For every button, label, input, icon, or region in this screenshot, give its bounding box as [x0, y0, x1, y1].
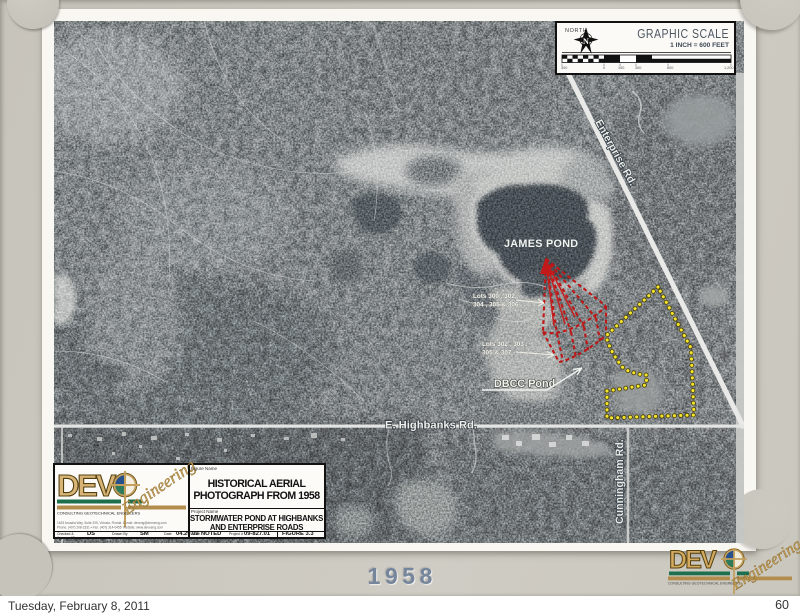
- svg-text:Lots 302 , 303 ,: Lots 302 , 303 ,: [482, 341, 528, 348]
- svg-text:Lots 300 , 302 ,: Lots 300 , 302 ,: [473, 293, 519, 300]
- svg-text:1,200: 1,200: [724, 66, 734, 70]
- svg-text:GRAPHIC SCALE: GRAPHIC SCALE: [637, 26, 729, 41]
- svg-text:Website: www.devoeng.com: Website: www.devoeng.com: [123, 526, 163, 530]
- svg-text:600: 600: [667, 66, 673, 70]
- svg-text:Phone: (407) 208-2331 • Fax: (: Phone: (407) 208-2331 • Fax: (407) 314-0…: [57, 526, 122, 530]
- svg-text:DBCC Pond: DBCC Pond: [494, 378, 555, 390]
- svg-text:1625 Arcadia Way, Suite 205, V: 1625 Arcadia Way, Suite 205, Volusia, Fl…: [57, 521, 122, 525]
- svg-text:DEV: DEV: [669, 546, 717, 574]
- svg-text:DEV: DEV: [57, 468, 117, 503]
- svg-text:150: 150: [618, 66, 624, 70]
- svg-text:305 & 307: 305 & 307: [482, 350, 512, 357]
- svg-text:N: N: [583, 37, 589, 46]
- svg-text:0: 0: [603, 66, 605, 70]
- svg-text:300: 300: [561, 66, 567, 70]
- svg-text:JAMES POND: JAMES POND: [504, 238, 578, 250]
- svg-text:E. Highbanks Rd.: E. Highbanks Rd.: [385, 420, 477, 432]
- svg-text:304 , 305 & 306: 304 , 305 & 306: [473, 302, 519, 309]
- svg-text:Cunningham Rd.: Cunningham Rd.: [614, 439, 626, 524]
- svg-text:300: 300: [635, 66, 641, 70]
- svg-text:E-mail: deveng@devoeng.com: E-mail: deveng@devoeng.com: [123, 521, 167, 525]
- svg-text:NORTH: NORTH: [565, 28, 587, 34]
- svg-text:1 INCH = 600 FEET: 1 INCH = 600 FEET: [670, 42, 729, 49]
